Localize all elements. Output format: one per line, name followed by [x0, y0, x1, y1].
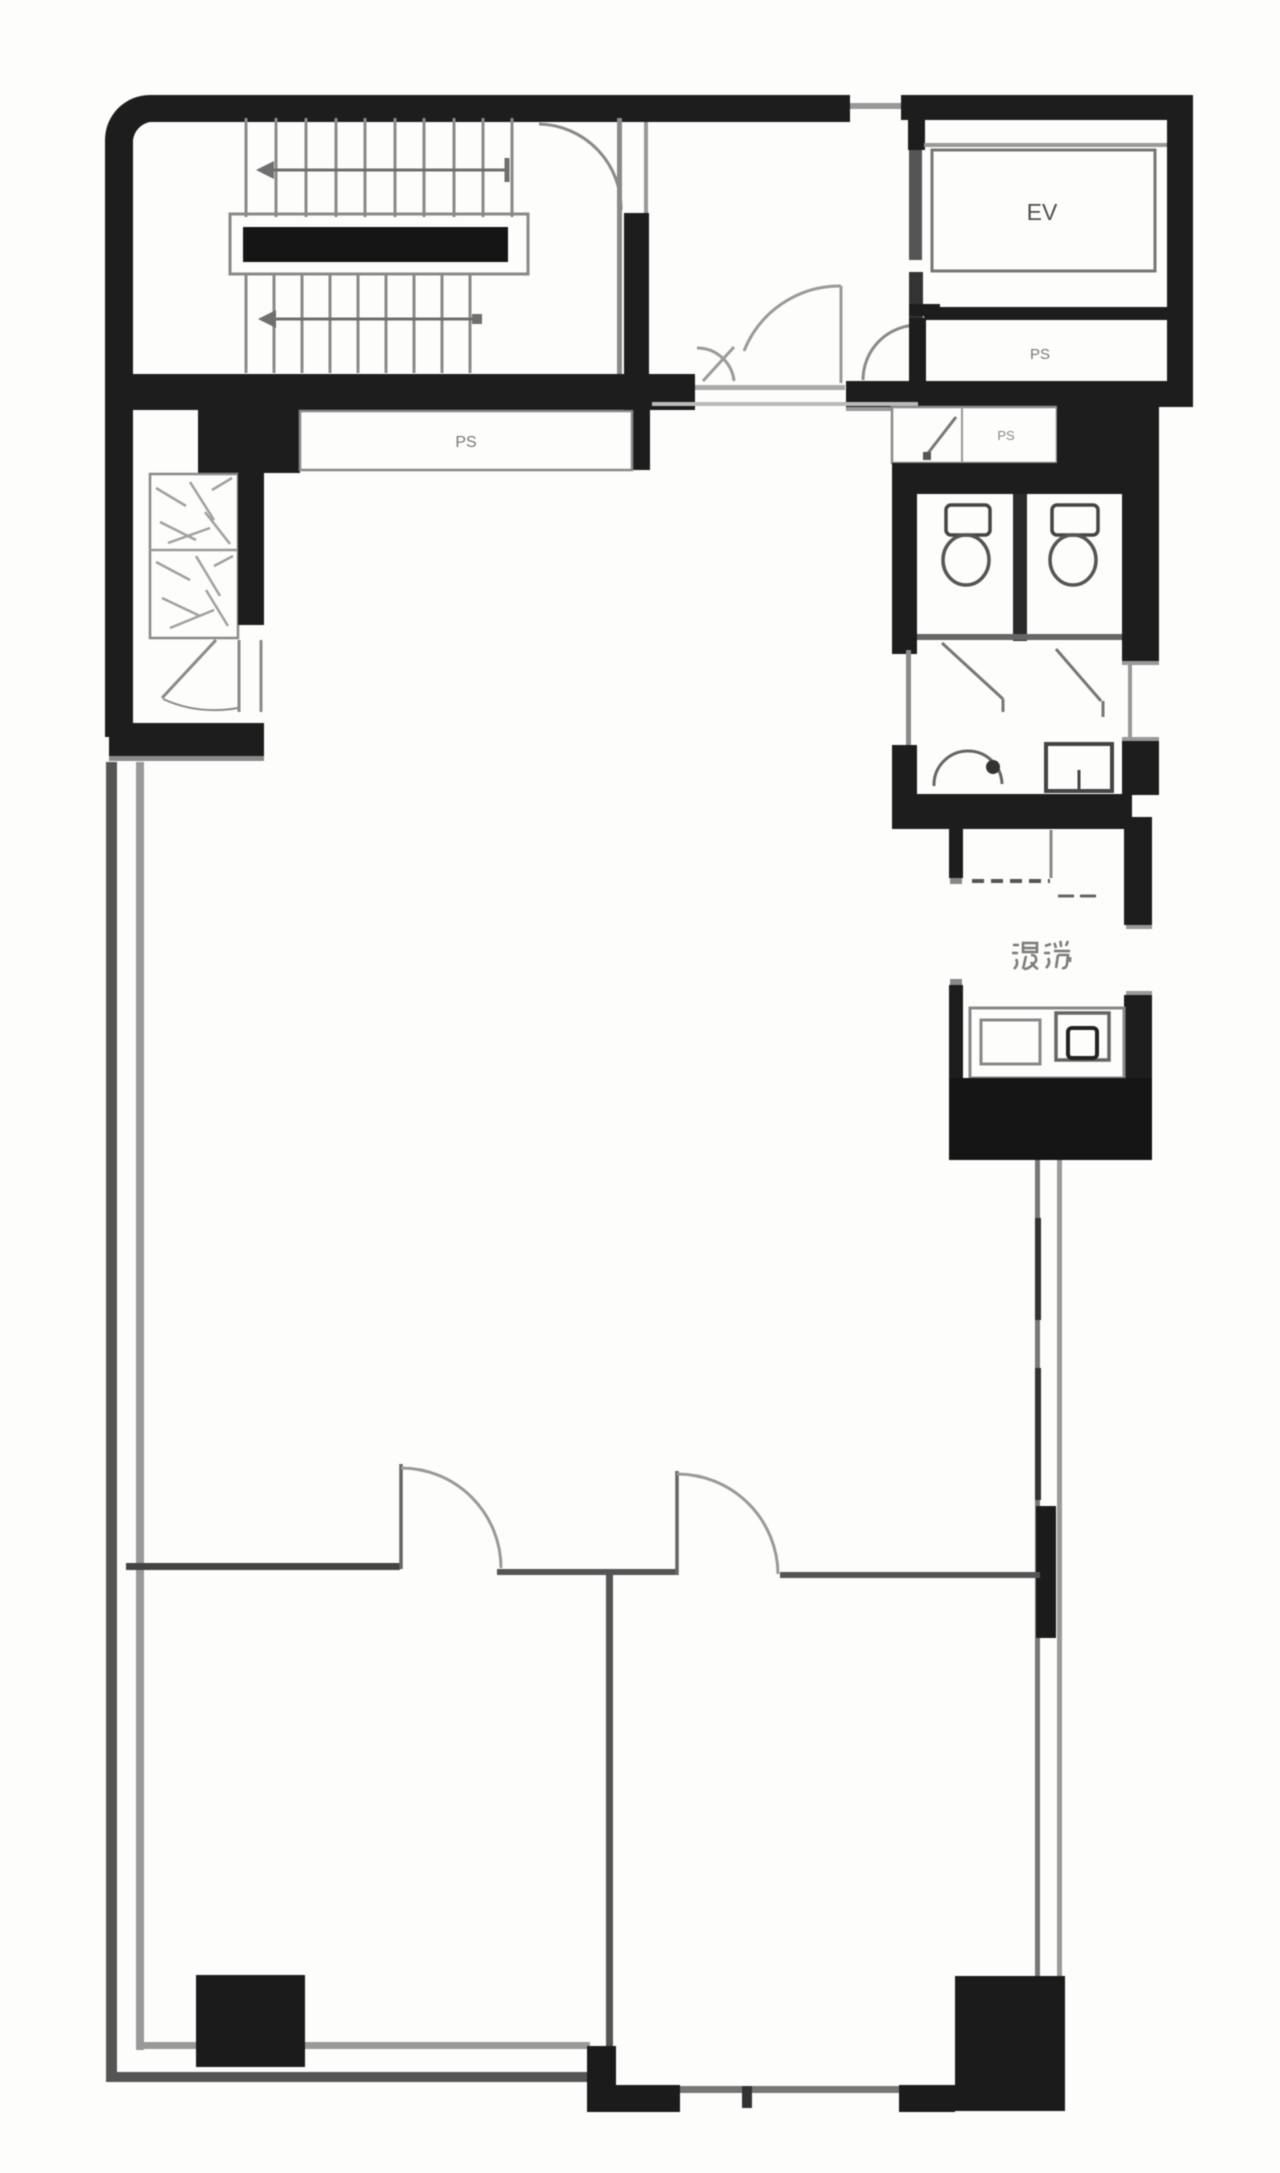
svg-text:PS: PS — [455, 434, 476, 451]
svg-text:PS: PS — [997, 428, 1015, 443]
svg-text:EV: EV — [1027, 199, 1058, 225]
svg-text:PS: PS — [1030, 346, 1050, 363]
